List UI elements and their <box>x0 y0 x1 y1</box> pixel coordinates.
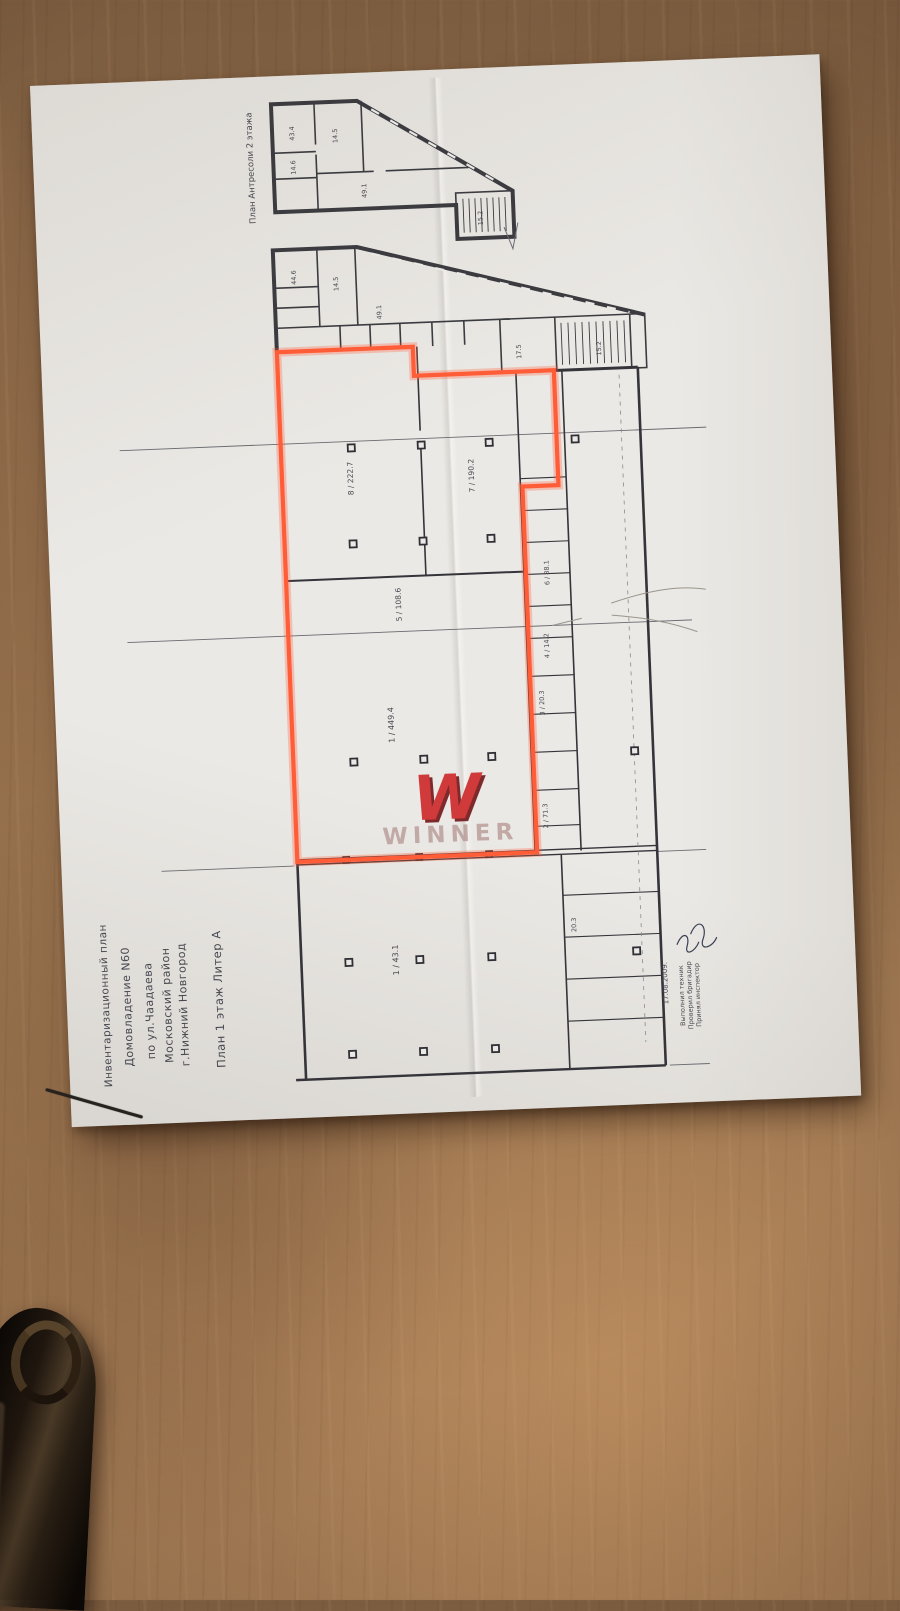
room-label: 7 / 190.2 <box>466 458 476 492</box>
main-plan-walls <box>267 332 666 1080</box>
address-line-5: г.Нижний Новгород <box>175 943 193 1067</box>
room-label: 17.5 <box>515 344 524 359</box>
signatures <box>676 923 717 952</box>
address-line-1: Инвентаризационный план <box>97 924 116 1088</box>
room-label: 14.5 <box>332 276 341 291</box>
room-label: 20.3 <box>570 917 579 932</box>
winner-wordmark: WINNER <box>382 819 519 850</box>
corridor-partitions <box>520 474 664 1022</box>
stamp-block: 17.08.2009. Выполнил техник Проверил бри… <box>659 923 720 1030</box>
room-label: 6 / 88.1 <box>542 560 551 585</box>
room-label: 15.2 <box>595 341 604 356</box>
address-line-3: по ул.Чаадаева <box>141 962 158 1059</box>
photo-of-floor-plan: { "paper": { "side_text": { "line1": "Ин… <box>0 0 900 1600</box>
stamp-date: 17.08.2009. <box>661 962 671 1005</box>
floor-plan-sheet: W W WINNER 8 / 222.7 7 / 190.2 5 / 108.6… <box>30 54 861 1127</box>
winner-watermark: W W WINNER <box>380 758 519 850</box>
room-label: 4 / 14.2 <box>542 633 551 658</box>
room-label: 15.2 <box>476 211 485 226</box>
address-block: Инвентаризационный план Домовладение N60… <box>97 919 229 1087</box>
address-line-2: Домовладение N60 <box>119 947 137 1067</box>
room-label: 49.1 <box>375 305 384 320</box>
plan-title: План 1 этаж Литер А <box>209 930 229 1068</box>
stamp-line-3: Принял инспектор <box>693 963 704 1027</box>
room-label: 44.6 <box>290 270 299 285</box>
room-label: 43.4 <box>288 126 297 141</box>
room-label: 49.1 <box>360 183 369 198</box>
room-label: 3 / 20.3 <box>538 690 547 715</box>
strap-highlight <box>0 1402 5 1592</box>
room-label: 1 / 449.4 <box>386 707 396 743</box>
room-label: 14.6 <box>289 160 298 175</box>
mezzanine-plan-caption: План Антресоли 2 этажа <box>244 112 258 224</box>
room-label: 8 / 222.7 <box>345 461 355 495</box>
room-label: 5 / 108.6 <box>393 587 403 621</box>
room-label: 2 / 71.3 <box>541 803 550 828</box>
floor-plan-drawing: W W WINNER 8 / 222.7 7 / 190.2 5 / 108.6… <box>30 54 861 1127</box>
room-label: 1 / 43.1 <box>391 945 401 976</box>
column-grid <box>325 433 650 1058</box>
leather-strap <box>0 1305 100 1610</box>
strap-buckle-ring <box>9 1319 83 1407</box>
mid-plan <box>273 236 647 383</box>
pencil-scribbles <box>504 216 708 639</box>
address-line-4: Московский район <box>159 947 177 1063</box>
room-label: 14.5 <box>331 128 340 143</box>
